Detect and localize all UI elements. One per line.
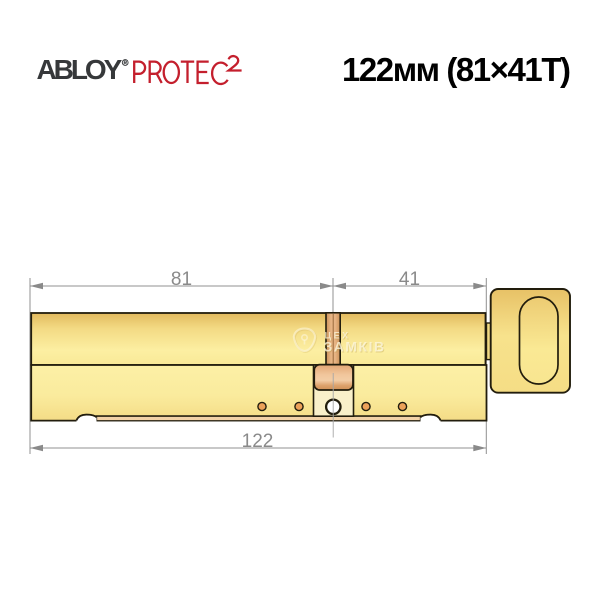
svg-text:ЗАМКІВ: ЗАМКІВ bbox=[324, 339, 386, 355]
svg-text:41: 41 bbox=[399, 269, 420, 290]
svg-text:122: 122 bbox=[242, 431, 274, 452]
svg-text:81: 81 bbox=[171, 269, 192, 290]
